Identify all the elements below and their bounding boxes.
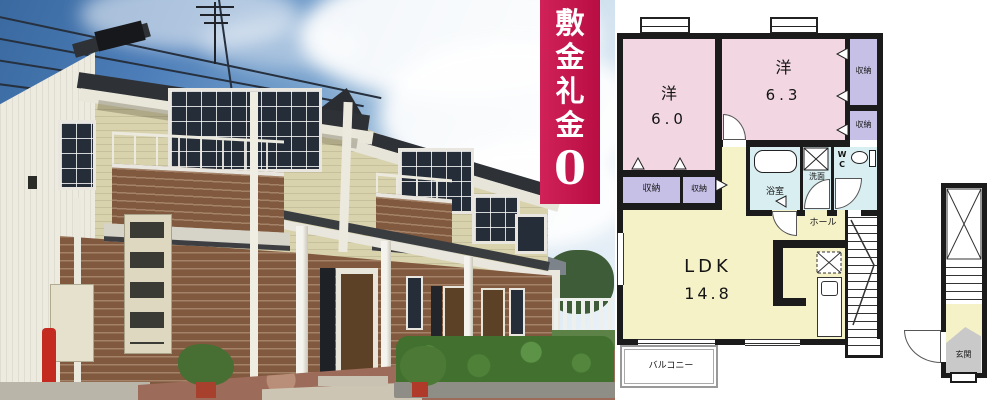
wall	[850, 105, 877, 111]
window	[58, 120, 96, 190]
toilet-tank	[869, 150, 876, 167]
downspout-corner	[250, 92, 258, 392]
closet-label: 収納	[850, 120, 877, 129]
kitchen-partition	[773, 240, 845, 248]
stair-line	[848, 345, 880, 346]
wall	[623, 170, 715, 177]
bedroom1-name: 洋	[623, 85, 715, 103]
potted-plant	[400, 346, 446, 386]
plan-window-left	[617, 233, 624, 285]
entrance-outside-step	[950, 372, 977, 383]
banner-char: 金	[555, 40, 584, 74]
wall	[623, 203, 722, 210]
washroom-label: 洗面	[803, 172, 831, 181]
door-triangle	[631, 157, 645, 170]
utility-box	[50, 284, 94, 362]
door-triangle	[673, 157, 687, 170]
closet-label: 収納	[850, 66, 877, 75]
meter-box-cells	[130, 222, 164, 344]
void-cross-icon	[946, 188, 982, 260]
porch-post	[381, 241, 391, 375]
floorplan-main-unit: 洋 6.0 洋 6.3 収納 収納 収納 収納 浴室 洗面 W C ホール LD…	[617, 33, 883, 345]
kitchen-sink	[821, 281, 838, 296]
plant-pot	[196, 382, 216, 398]
wall-lamp	[28, 176, 37, 189]
plan-window-bottom	[745, 339, 800, 346]
bedroom1-area: 6.0	[623, 111, 715, 128]
wall	[746, 147, 750, 210]
entrance-label: 玄関	[946, 350, 981, 359]
banner-char: 敷	[555, 6, 584, 40]
window	[515, 214, 547, 254]
wall	[827, 210, 837, 216]
balcony-label: バルコニー	[632, 361, 710, 371]
slit-window	[406, 276, 423, 330]
bedroom2-name: 洋	[722, 59, 845, 77]
entrance-stairs	[946, 260, 982, 304]
bathtub	[754, 150, 797, 173]
entrance-door-opening	[941, 332, 946, 362]
plan-window-top	[770, 17, 818, 34]
door-opening	[723, 140, 746, 147]
staircase	[848, 210, 877, 339]
entrance-door-arc	[904, 330, 941, 363]
ldk-area: 14.8	[648, 285, 768, 303]
wc-label-c: C	[836, 160, 848, 169]
kitchen-partition	[773, 240, 783, 306]
washing-machine-icon	[803, 147, 829, 171]
wc-label-w: W	[836, 150, 848, 159]
window-grid	[475, 197, 517, 241]
wall	[797, 210, 805, 216]
room-bedroom1	[623, 39, 715, 170]
banner-zero: 0	[554, 142, 586, 194]
antenna-arm	[200, 14, 230, 16]
wall	[746, 210, 772, 216]
closet-label: 収納	[623, 184, 680, 194]
porch-step	[318, 376, 388, 386]
toilet-bowl	[851, 151, 868, 164]
stair-bay-extension	[845, 339, 883, 358]
banner-char: 礼	[555, 74, 584, 108]
stair-direction-line	[848, 210, 877, 339]
kitchen-partition	[773, 298, 806, 306]
bedroom2-area: 6.3	[722, 87, 845, 104]
ldk-name: LDK	[648, 257, 768, 278]
plant-pot	[412, 382, 428, 397]
bath-label: 浴室	[750, 187, 800, 197]
door-triangle	[836, 123, 849, 137]
closet-label: 収納	[683, 184, 715, 193]
antenna-arm	[196, 6, 234, 8]
wall	[861, 210, 877, 216]
slit-window	[509, 288, 525, 336]
building-photo	[0, 0, 615, 400]
porch-post	[296, 226, 308, 378]
window	[472, 194, 520, 244]
antenna-arm	[204, 22, 228, 24]
potted-plant	[178, 344, 234, 386]
wall	[845, 210, 848, 339]
floorplan: 洋 6.0 洋 6.3 収納 収納 収納 収納 浴室 洗面 W C ホール LD…	[615, 0, 1000, 400]
deposit-keymoney-banner: 敷 金 礼 金 0	[540, 0, 600, 204]
listing-image: 敷 金 礼 金 0	[0, 0, 1000, 400]
door-triangle	[715, 178, 728, 192]
entrance-door	[341, 274, 373, 372]
tv-antenna-icon	[214, 2, 216, 64]
doorway-shadow	[320, 268, 335, 376]
hall-label: ホール	[801, 218, 845, 228]
entrance-structure: 玄関	[941, 183, 987, 378]
concrete-strip	[0, 382, 150, 400]
balcony: バルコニー	[620, 345, 718, 388]
refrigerator-space-icon	[816, 251, 842, 274]
window-grid	[61, 123, 93, 187]
wall	[831, 147, 834, 210]
banner-char: 金	[555, 108, 584, 142]
plan-window-top	[640, 17, 690, 34]
